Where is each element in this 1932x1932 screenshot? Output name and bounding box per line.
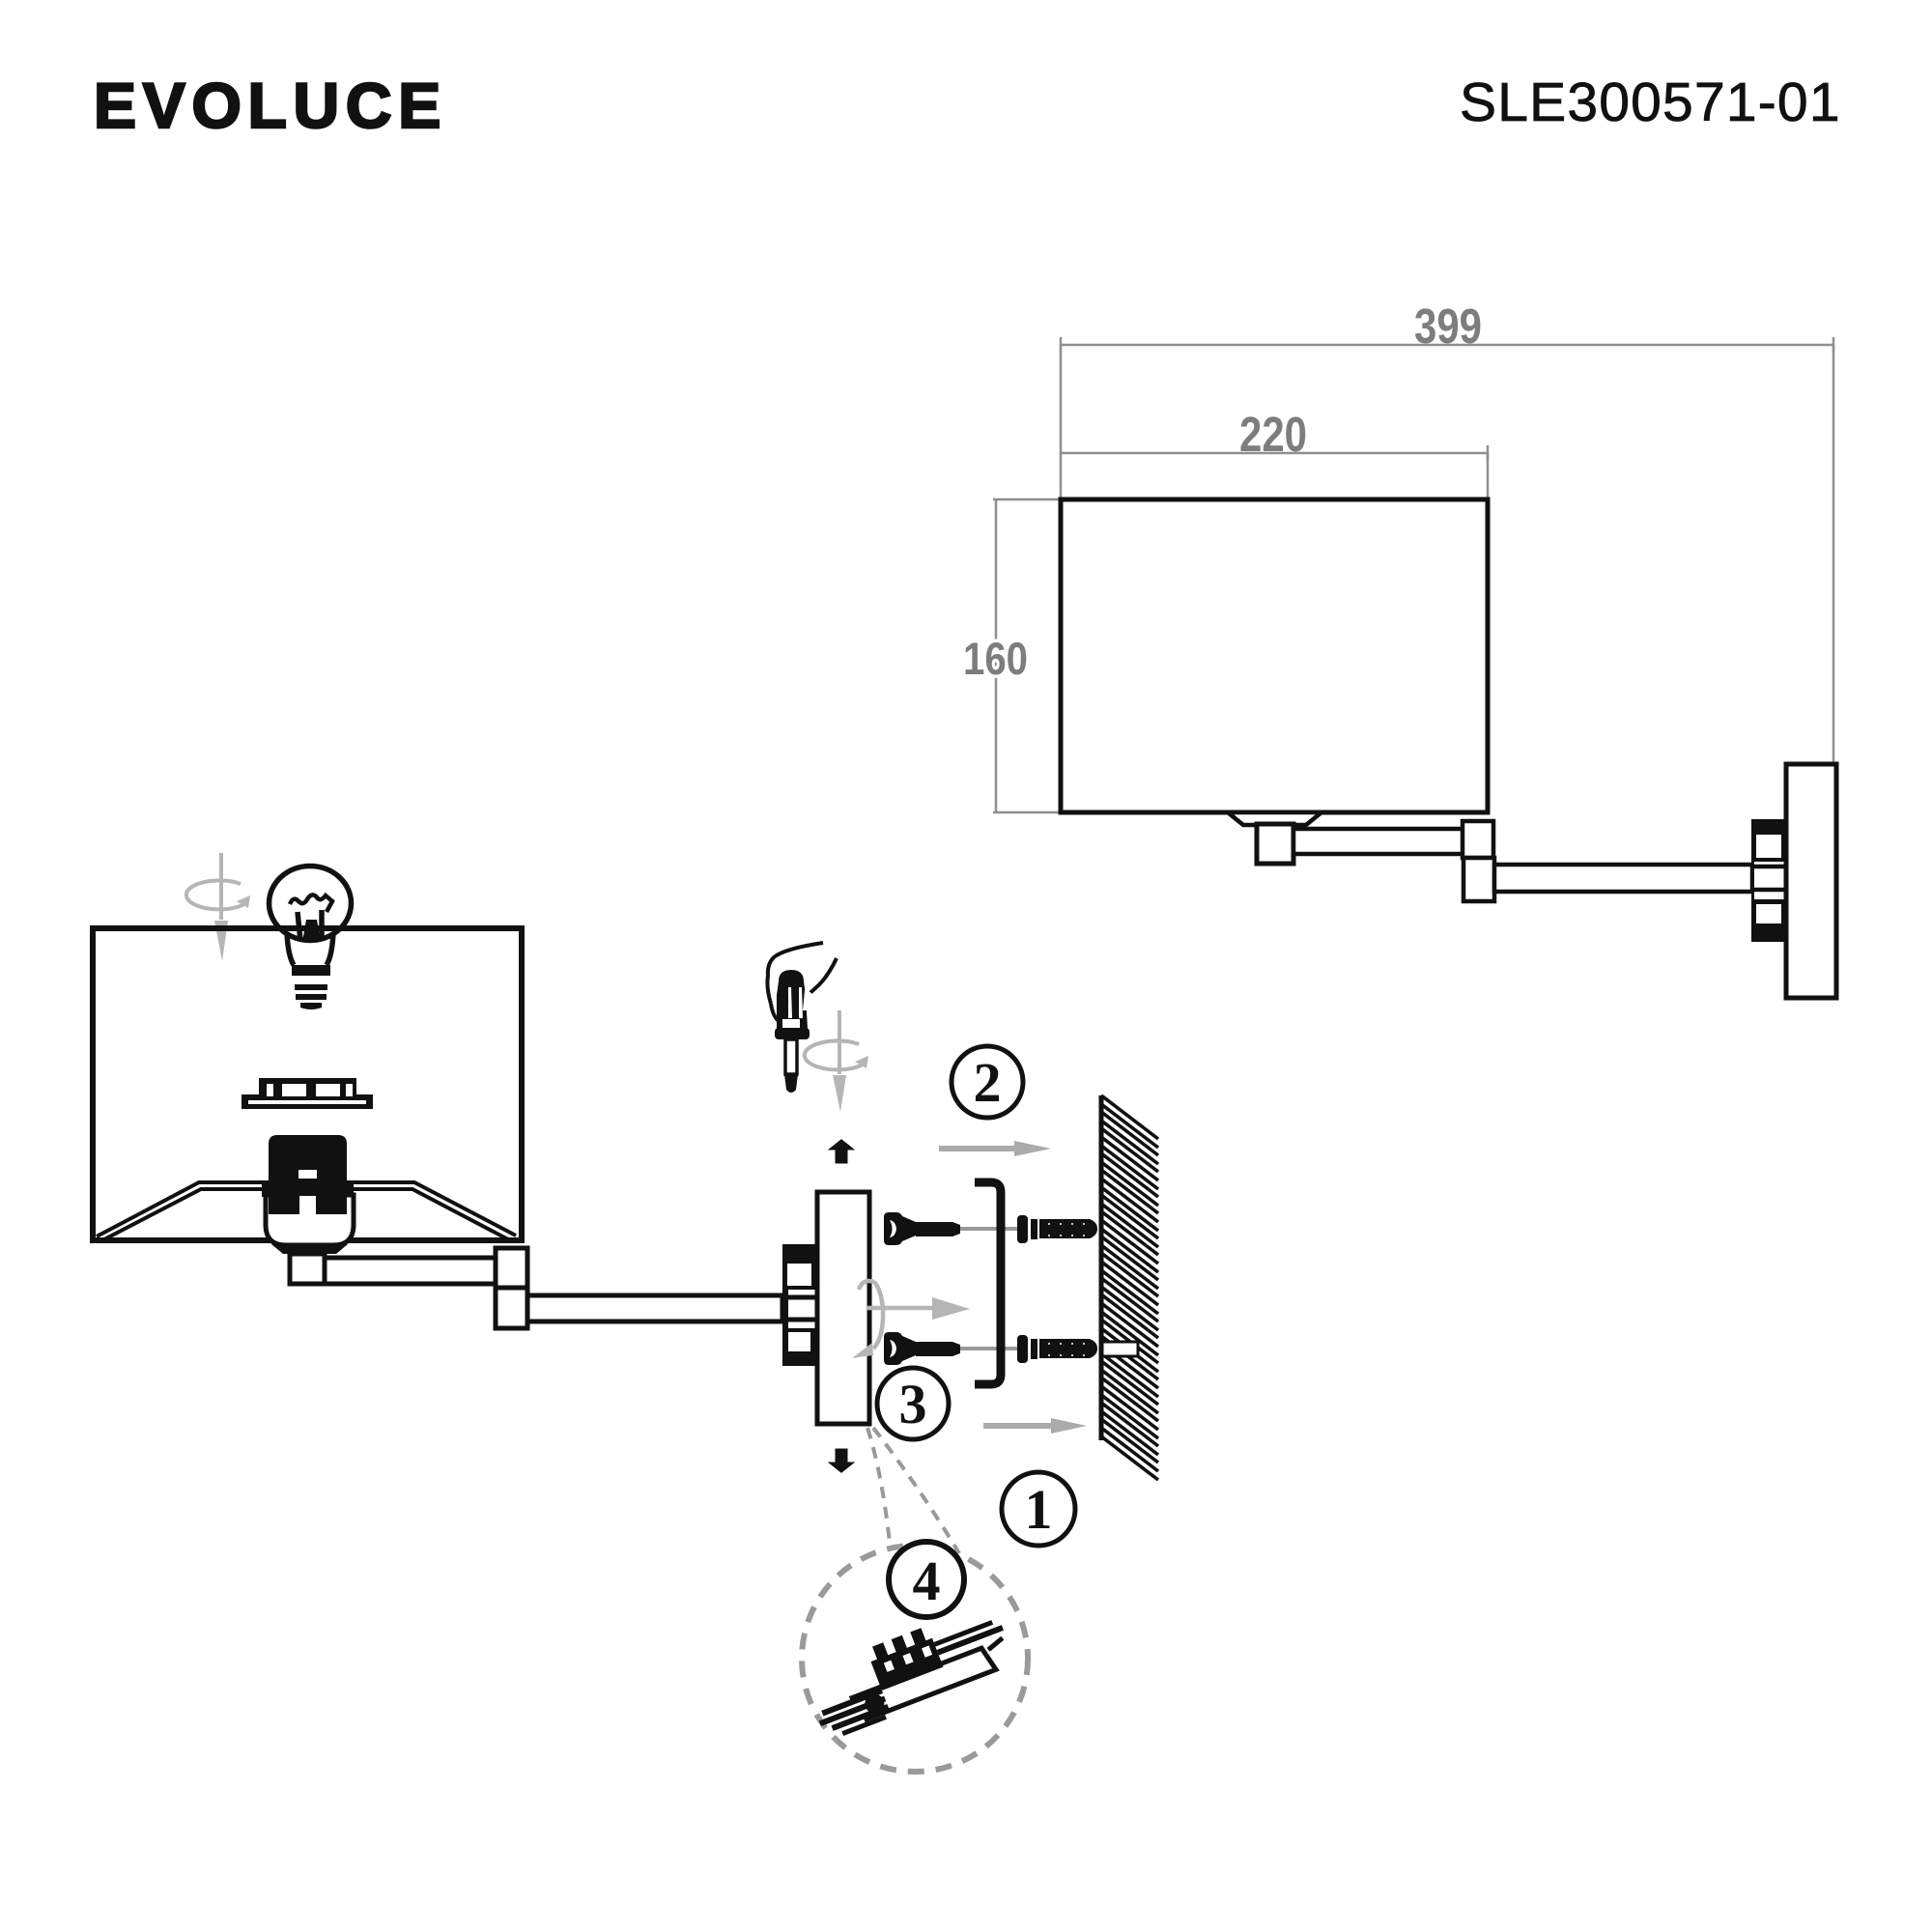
svg-text:399: 399	[1414, 298, 1482, 354]
svg-text:SLE300571-01: SLE300571-01	[1460, 71, 1841, 133]
svg-text:220: 220	[1239, 407, 1307, 462]
svg-text:EVOLUCE: EVOLUCE	[94, 70, 447, 141]
svg-text:3: 3	[899, 1373, 927, 1435]
svg-text:2: 2	[974, 1051, 1002, 1114]
svg-text:160: 160	[963, 633, 1028, 684]
svg-text:4: 4	[913, 1549, 941, 1612]
svg-text:1: 1	[1025, 1478, 1053, 1541]
